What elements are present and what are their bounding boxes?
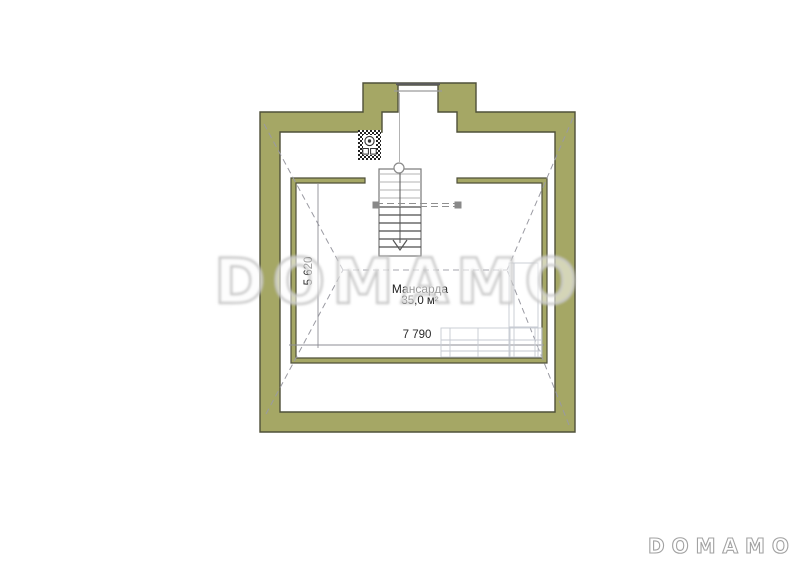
stair-start-marker [394,163,404,173]
floor-plan-canvas: Мансарда 35,0 м² 7 790 5 620 DOMAMO DOMA… [0,0,800,566]
watermark-text: DOMAMO [214,251,584,313]
brand-logo: DOMAMO [648,536,796,556]
staircase-icon [379,93,421,256]
dimension-width-label: 7 790 [377,329,457,341]
chimney-flue-icon [361,133,379,158]
dormer-window-icon [394,84,442,91]
